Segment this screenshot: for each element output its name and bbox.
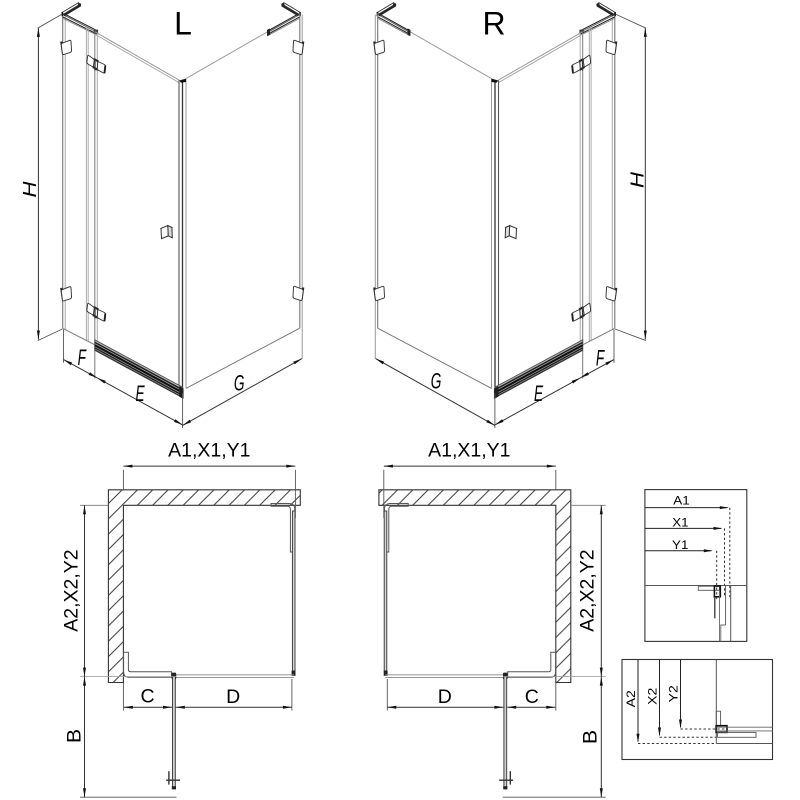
svg-text:A2: A2 [624,690,638,707]
svg-text:B: B [580,730,602,744]
svg-text:C: C [525,686,539,708]
svg-text:C: C [141,685,155,707]
svg-text:A1: A1 [673,493,689,507]
svg-text:G: G [431,368,442,393]
svg-text:A1,X1,Y1: A1,X1,Y1 [168,439,250,461]
svg-text:F: F [78,344,88,369]
svg-text:G: G [234,370,245,395]
svg-text:D: D [438,686,452,708]
svg-text:X1: X1 [672,515,688,529]
svg-text:A2,X2,Y2: A2,X2,Y2 [577,549,599,631]
svg-text:L: L [174,6,192,42]
svg-text:H: H [628,172,648,188]
svg-text:R: R [482,6,505,42]
svg-text:H: H [21,181,41,197]
svg-text:Y2: Y2 [666,685,680,702]
svg-text:F: F [596,345,606,370]
svg-text:B: B [64,729,86,743]
svg-text:A2,X2,Y2: A2,X2,Y2 [61,549,83,631]
svg-text:Y1: Y1 [672,537,688,551]
svg-text:A1,X1,Y1: A1,X1,Y1 [428,439,510,461]
svg-text:E: E [136,380,146,405]
svg-text:E: E [534,381,544,406]
svg-text:X2: X2 [645,688,659,705]
svg-text:D: D [226,686,240,708]
